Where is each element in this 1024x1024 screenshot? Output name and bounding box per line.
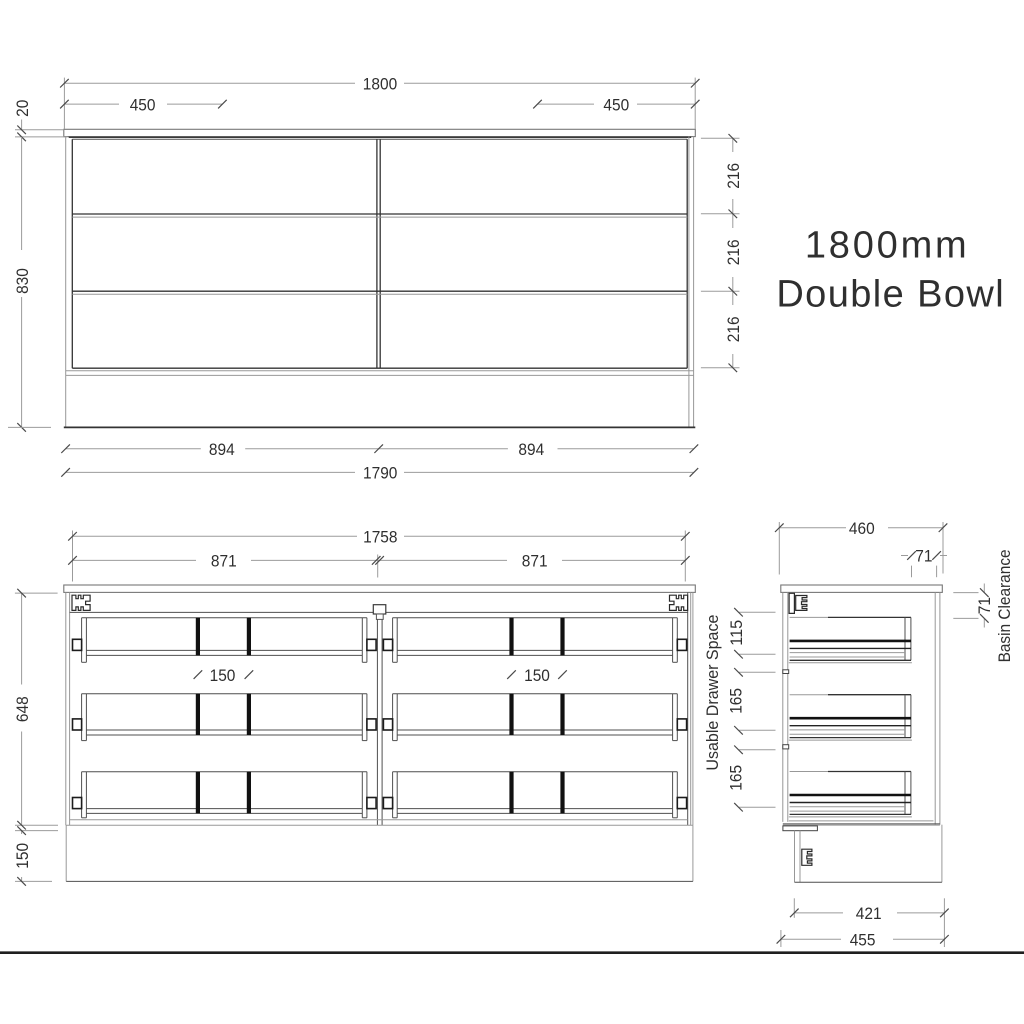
svg-text:830: 830	[13, 268, 32, 294]
svg-text:216: 216	[724, 163, 743, 189]
svg-text:648: 648	[13, 696, 32, 722]
svg-text:71: 71	[975, 597, 994, 614]
svg-text:216: 216	[724, 316, 743, 342]
svg-text:450: 450	[603, 95, 629, 114]
svg-text:Usable Drawer Space: Usable Drawer Space	[703, 615, 722, 771]
svg-text:Basin Clearance: Basin Clearance	[995, 549, 1014, 662]
svg-text:150: 150	[210, 666, 236, 685]
svg-text:150: 150	[13, 843, 32, 869]
svg-text:455: 455	[850, 931, 876, 950]
svg-text:150: 150	[524, 666, 550, 685]
svg-text:71: 71	[915, 547, 932, 566]
svg-text:20: 20	[13, 100, 32, 117]
svg-text:450: 450	[130, 95, 156, 114]
svg-text:460: 460	[849, 519, 875, 538]
svg-text:165: 165	[727, 765, 746, 791]
svg-text:1758: 1758	[363, 528, 397, 547]
svg-text:165: 165	[726, 688, 745, 714]
svg-text:894: 894	[209, 440, 235, 459]
svg-text:421: 421	[856, 904, 882, 923]
svg-text:1800mm: 1800mm	[805, 225, 970, 267]
svg-text:216: 216	[724, 239, 743, 265]
svg-text:894: 894	[518, 440, 544, 459]
svg-text:871: 871	[522, 552, 548, 571]
svg-text:1790: 1790	[363, 464, 397, 483]
svg-text:871: 871	[211, 552, 237, 571]
svg-text:115: 115	[727, 620, 746, 646]
svg-text:Double Bowl: Double Bowl	[776, 273, 1005, 315]
svg-text:1800: 1800	[363, 74, 397, 93]
